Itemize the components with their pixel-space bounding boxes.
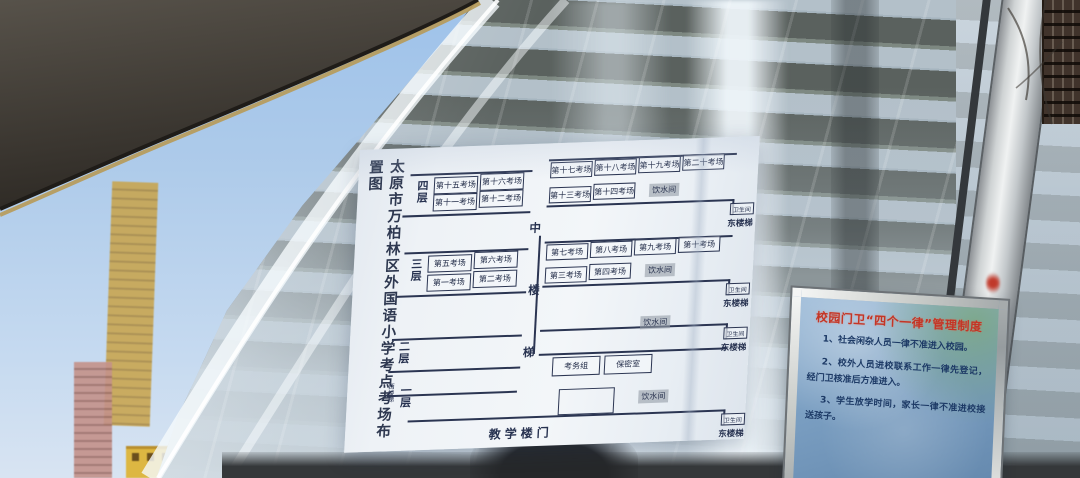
mid-stair-char-1: 中 bbox=[529, 220, 541, 236]
stair-wall bbox=[725, 323, 728, 339]
wall bbox=[404, 248, 528, 255]
wall bbox=[388, 367, 520, 374]
notice-rule: 2、校外人员进校联系工作一律先登记，经门卫核准后方准进入。 bbox=[806, 354, 987, 396]
wall bbox=[540, 323, 728, 332]
west-stair-label: 西楼梯 bbox=[385, 383, 396, 403]
exam-room-box: 第十九考场 bbox=[638, 156, 681, 174]
wall bbox=[545, 235, 733, 244]
wall bbox=[387, 391, 517, 398]
exam-room-box: 第十考场 bbox=[678, 235, 721, 253]
exam-room-box: 第十二考场 bbox=[479, 189, 524, 208]
exam-room-box: 第十一考场 bbox=[433, 193, 478, 212]
wall bbox=[402, 211, 530, 218]
poster-title: 太原市万柏林区外国语小学考点考场布置图 bbox=[350, 158, 407, 448]
stair-wall bbox=[732, 199, 735, 215]
exam-room-box: 第十六考场 bbox=[480, 172, 525, 191]
floor-label-1: 一层 bbox=[396, 384, 413, 409]
exam-room-box: 第七考场 bbox=[546, 243, 589, 261]
notice-board: 校园门卫“四个一律”管理制度 1、社会闲杂人员一律不准进入校园。 2、校外人员进… bbox=[784, 288, 1008, 478]
exam-office-box: 考务组 bbox=[552, 356, 601, 377]
exam-room-box: 第十三考场 bbox=[549, 186, 592, 204]
mid-stair-char-3: 梯 bbox=[523, 344, 535, 360]
wall bbox=[410, 170, 532, 176]
east-stair-label: 东楼梯 bbox=[718, 427, 744, 440]
east-stair-label: 东楼梯 bbox=[723, 297, 749, 310]
stair-wall bbox=[723, 409, 726, 425]
distant-brown-building bbox=[1042, 0, 1080, 124]
stair-wall bbox=[727, 279, 730, 295]
restroom-box: 卫生间 bbox=[723, 327, 748, 340]
restroom-box: 卫生间 bbox=[721, 413, 746, 426]
east-stair-label: 东楼梯 bbox=[720, 341, 746, 354]
notice-rule: 1、社会闲杂人员一律不准进入校园。 bbox=[808, 332, 988, 359]
photo-scene: 太原市万柏林区外国语小学考点考场布置图 四层 三层 二层 一层 西楼梯 中 楼 … bbox=[0, 0, 1080, 478]
red-reflection-spot bbox=[986, 272, 1000, 294]
floor-label-3: 三层 bbox=[407, 258, 424, 283]
wall bbox=[542, 279, 730, 288]
mid-stair-line bbox=[533, 236, 541, 354]
distant-pink-tower bbox=[74, 362, 112, 478]
exam-room-box: 第二考场 bbox=[472, 270, 517, 289]
exam-room-box: 第一考场 bbox=[426, 273, 471, 292]
notice-board-content: 校园门卫“四个一律”管理制度 1、社会闲杂人员一律不准进入校园。 2、校外人员进… bbox=[795, 297, 998, 442]
exam-room-box: 第十五考场 bbox=[433, 176, 478, 195]
exam-room-box: 第五考场 bbox=[427, 254, 472, 273]
exam-room-box: 第九考场 bbox=[634, 238, 677, 256]
water-room-label: 饮水间 bbox=[638, 389, 669, 403]
water-room-label: 饮水间 bbox=[645, 263, 676, 277]
water-room-label: 饮水间 bbox=[649, 183, 680, 197]
exam-room-box: 第十四考场 bbox=[593, 182, 636, 200]
notice-board-title: 校园门卫“四个一律”管理制度 bbox=[809, 308, 989, 336]
mid-stair-char-2: 楼 bbox=[528, 282, 540, 298]
wall bbox=[392, 334, 522, 341]
wall bbox=[539, 347, 727, 356]
exam-room-box: 第十八考场 bbox=[594, 158, 637, 176]
exam-room-box: 第八考场 bbox=[590, 241, 633, 259]
restroom-box: 卫生间 bbox=[725, 282, 750, 295]
wall bbox=[408, 409, 726, 422]
wall bbox=[549, 153, 737, 162]
exam-room-box: 第六考场 bbox=[473, 251, 518, 270]
water-room-label: 饮水间 bbox=[640, 315, 671, 329]
secure-room-box: 保密室 bbox=[604, 354, 653, 375]
wall bbox=[547, 199, 735, 208]
restroom-box: 卫生间 bbox=[730, 202, 755, 215]
floor-label-4: 四层 bbox=[413, 180, 430, 205]
notice-rule: 3、学生放学时间，家长一律不准进校接送孩子。 bbox=[805, 393, 986, 435]
entrance-hall-box bbox=[558, 387, 615, 415]
floor-label-2: 二层 bbox=[395, 340, 412, 365]
exam-room-box: 第二十考场 bbox=[682, 153, 725, 171]
wall bbox=[396, 291, 526, 298]
building-gate-label: 教学楼门 bbox=[488, 423, 553, 442]
exam-room-box: 第三考场 bbox=[545, 266, 588, 284]
exam-room-box: 第四考场 bbox=[589, 263, 632, 281]
east-stair-label: 东楼梯 bbox=[727, 216, 753, 229]
exam-room-box: 第十七考场 bbox=[550, 161, 593, 179]
exam-layout-poster: 太原市万柏林区外国语小学考点考场布置图 四层 三层 二层 一层 西楼梯 中 楼 … bbox=[344, 136, 760, 453]
